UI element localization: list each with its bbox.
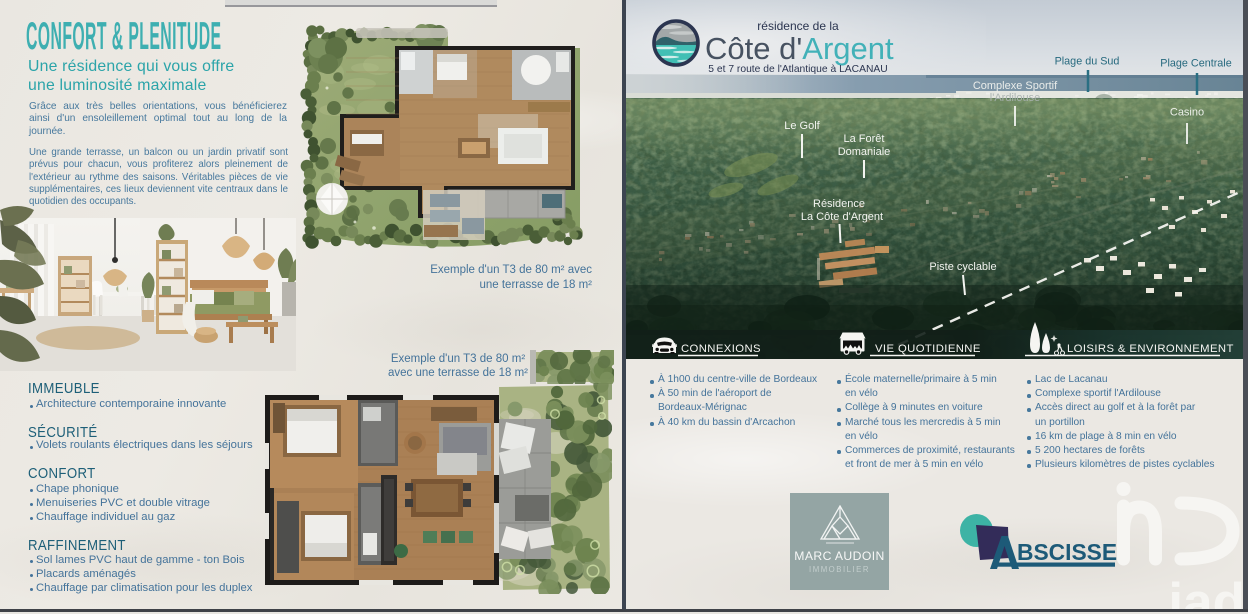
svg-text:Plage du Sud: Plage du Sud <box>1055 56 1120 68</box>
svg-text:VIE QUOTIDIENNE: VIE QUOTIDIENNE <box>875 343 981 355</box>
svg-text:Le Golf: Le Golf <box>784 120 820 132</box>
svg-text:La Forêt: La Forêt <box>844 133 885 145</box>
svg-text:Piste cyclable: Piste cyclable <box>929 261 996 273</box>
svg-text:Résidence: Résidence <box>813 198 865 210</box>
svg-text:iad: iad <box>1168 573 1243 614</box>
svg-text:Casino: Casino <box>1170 107 1204 119</box>
svg-text:La Côte d'Argent: La Côte d'Argent <box>801 211 883 223</box>
svg-text:BSCISSE: BSCISSE <box>1017 539 1117 565</box>
svg-text:LOISIRS & ENVIRONNEMENT: LOISIRS & ENVIRONNEMENT <box>1067 343 1234 355</box>
svg-text:Domaniale: Domaniale <box>838 146 891 158</box>
svg-text:5 et 7 route de l'Atlantique à: 5 et 7 route de l'Atlantique à LACANAU <box>708 64 887 75</box>
svg-text:Complexe Sportif: Complexe Sportif <box>973 80 1058 92</box>
svg-text:CONNEXIONS: CONNEXIONS <box>681 343 761 355</box>
svg-text:Plage Centrale: Plage Centrale <box>1160 58 1231 70</box>
svg-text:Côte d'Argent: Côte d'Argent <box>705 31 894 66</box>
svg-text:l'Ardilouse: l'Ardilouse <box>990 92 1040 104</box>
